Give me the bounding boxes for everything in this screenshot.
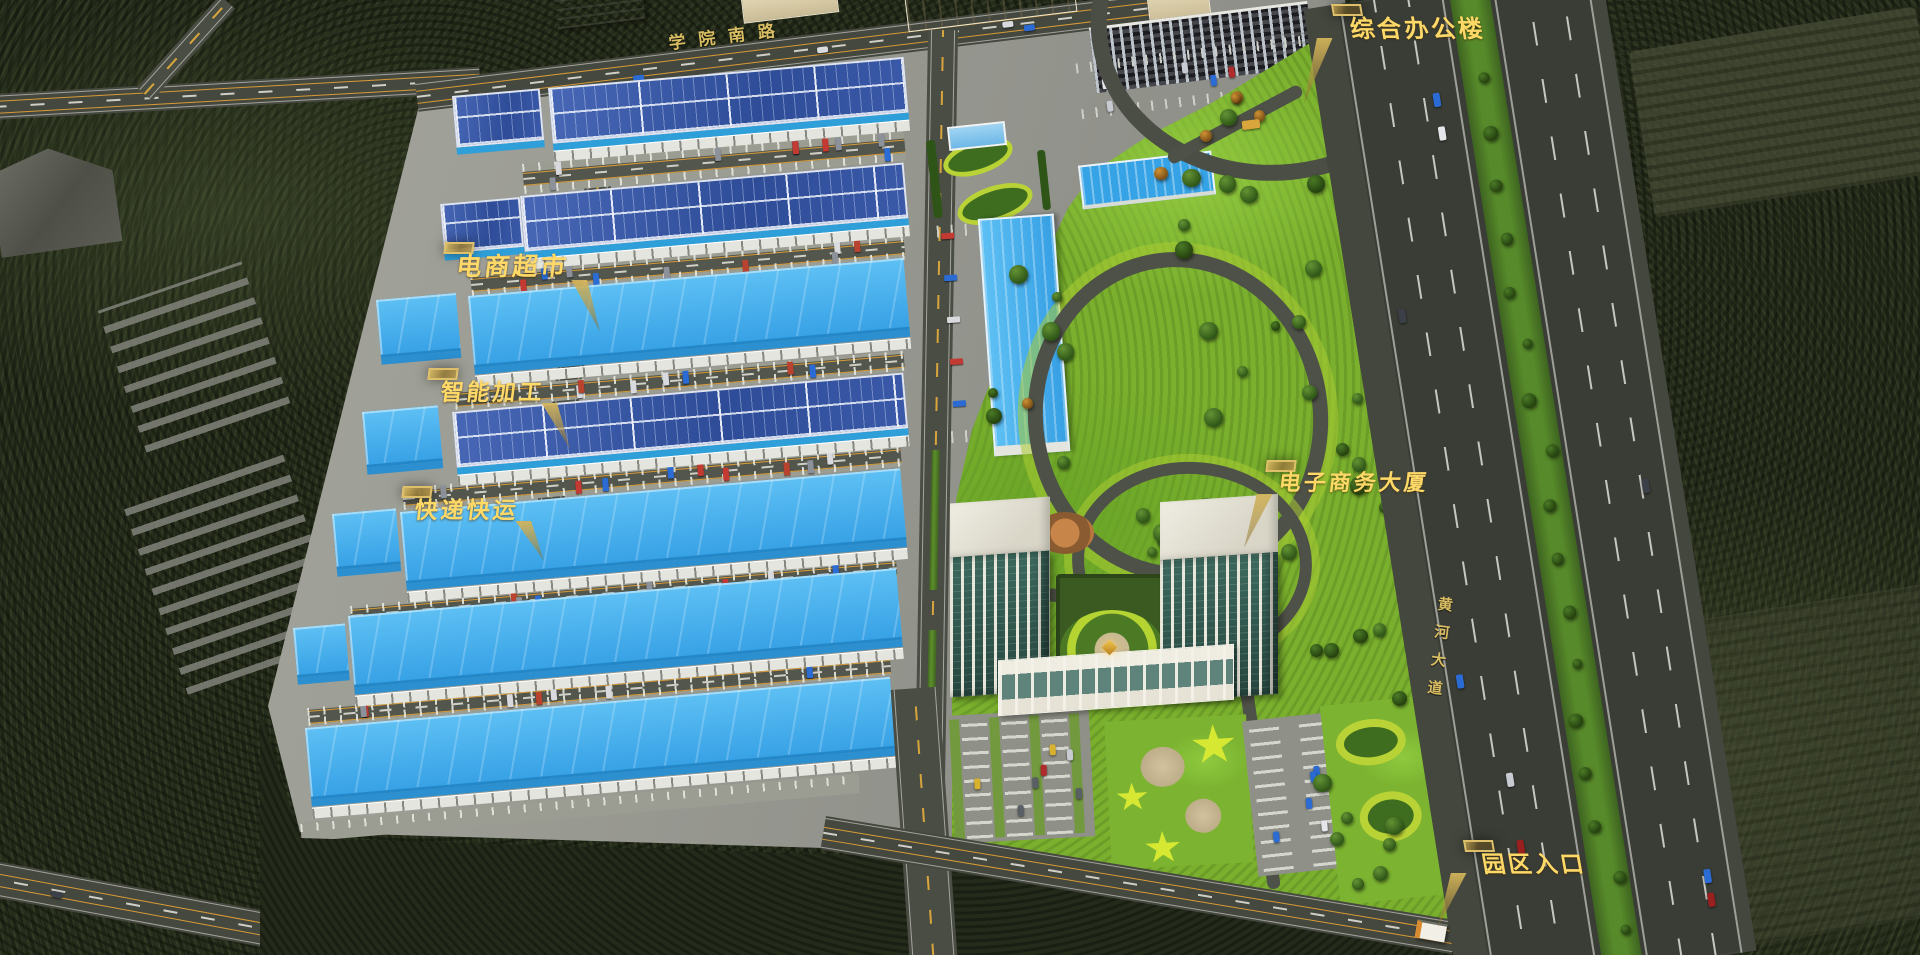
truck — [549, 177, 556, 190]
truck — [835, 137, 842, 150]
tree — [1220, 109, 1237, 126]
truck — [536, 691, 543, 704]
tree — [1352, 878, 1364, 890]
car — [974, 778, 981, 789]
tree — [1373, 623, 1386, 636]
truck — [941, 233, 954, 240]
parking-lot-south-west — [949, 708, 1096, 843]
truck — [787, 361, 794, 374]
solar-roof — [452, 88, 544, 147]
tree — [986, 408, 1002, 424]
truck — [578, 380, 585, 393]
callout-chip[interactable]: 智能加工 — [427, 368, 458, 380]
truck — [555, 162, 562, 175]
truck — [663, 372, 670, 385]
parking-stripes — [1248, 722, 1293, 872]
car — [1040, 765, 1047, 776]
tree — [1178, 219, 1190, 231]
callout-chip[interactable]: 电子商务大厦 — [1265, 460, 1296, 472]
tree — [1330, 832, 1344, 846]
tree — [1154, 167, 1168, 181]
garden-plaza — [1184, 798, 1222, 834]
star-garden — [1104, 714, 1254, 869]
truck — [723, 467, 730, 480]
tree — [1324, 643, 1339, 658]
car — [1456, 674, 1465, 689]
tree — [1175, 241, 1193, 259]
truck — [878, 133, 885, 146]
truck — [630, 380, 637, 393]
tree — [1182, 169, 1200, 187]
truck — [950, 358, 963, 365]
car — [52, 891, 64, 899]
tree — [1383, 838, 1395, 850]
tree — [1231, 93, 1241, 103]
truck — [809, 364, 816, 377]
tree — [1307, 175, 1325, 193]
truck — [953, 400, 966, 407]
car — [1002, 21, 1014, 28]
truck — [947, 316, 960, 323]
small-warehouse-solar — [452, 88, 545, 155]
car — [1506, 773, 1515, 788]
small-warehouse-cyan — [376, 293, 461, 364]
truck — [822, 138, 829, 151]
callout-chip[interactable]: 园区入口 — [1463, 840, 1495, 852]
tree — [1052, 292, 1062, 302]
car — [1641, 478, 1650, 493]
truck — [944, 274, 957, 281]
callout-label: 智能加工 — [439, 373, 547, 407]
truck — [605, 685, 612, 698]
truck — [807, 460, 814, 473]
callout-chip[interactable]: 电商超市 — [443, 242, 474, 254]
road-median-planting — [929, 450, 939, 590]
car — [816, 46, 828, 53]
truck — [783, 462, 790, 475]
tree — [1200, 130, 1212, 142]
truck — [682, 371, 689, 384]
car — [1321, 820, 1328, 832]
callout-label: 园区入口 — [1479, 845, 1589, 879]
truck — [602, 478, 609, 491]
car — [1707, 893, 1716, 908]
tree — [1305, 260, 1322, 277]
tree — [1240, 186, 1258, 204]
tree — [1022, 398, 1033, 409]
car — [1703, 868, 1712, 883]
callout-label: 综合办公楼 — [1347, 9, 1488, 44]
parking-stripes — [1001, 716, 1033, 837]
star-hedge — [1115, 782, 1149, 814]
cyan-roof — [362, 405, 443, 467]
tree — [1204, 408, 1223, 427]
callout-label: 电商超市 — [455, 247, 571, 283]
cyan-roof — [376, 293, 461, 358]
garden-plaza — [1140, 746, 1186, 788]
tree — [1057, 456, 1070, 469]
truck — [506, 694, 513, 707]
truck — [575, 480, 582, 493]
car — [1032, 778, 1039, 789]
star-hedge — [1144, 830, 1182, 866]
callout-label: 电子商务大厦 — [1277, 465, 1431, 497]
tree — [1136, 508, 1151, 523]
car — [1106, 100, 1113, 112]
tree — [1302, 385, 1317, 400]
oval-hedge-ring — [1334, 716, 1408, 769]
car — [1432, 93, 1441, 108]
truck — [714, 148, 721, 161]
tree — [1042, 322, 1060, 340]
tree — [1147, 547, 1157, 557]
cyan-roof — [332, 508, 401, 569]
tree — [1271, 321, 1280, 330]
car — [1067, 750, 1074, 761]
small-warehouse-cyan — [362, 405, 443, 473]
logistics-park-aerial-rendering: 学院南路 — [0, 0, 1920, 955]
callout-chip[interactable]: 综合办公楼 — [1331, 4, 1363, 16]
tree — [1373, 866, 1388, 881]
car — [1023, 25, 1035, 32]
cyan-roof — [293, 623, 349, 677]
callout-chip[interactable]: 快递快运 — [401, 486, 432, 498]
tree — [1199, 322, 1217, 340]
truck — [792, 141, 799, 154]
car — [1018, 805, 1025, 816]
car — [1438, 126, 1447, 141]
star-hedge — [1191, 723, 1237, 767]
tree — [1219, 175, 1236, 192]
small-warehouse-cyan — [332, 508, 401, 575]
truck — [884, 148, 891, 161]
callout-label: 快递快运 — [413, 491, 521, 525]
small-warehouse-cyan — [293, 623, 350, 683]
car — [1076, 788, 1083, 799]
car — [1050, 745, 1057, 756]
car — [1398, 308, 1407, 323]
tree — [1353, 629, 1367, 643]
